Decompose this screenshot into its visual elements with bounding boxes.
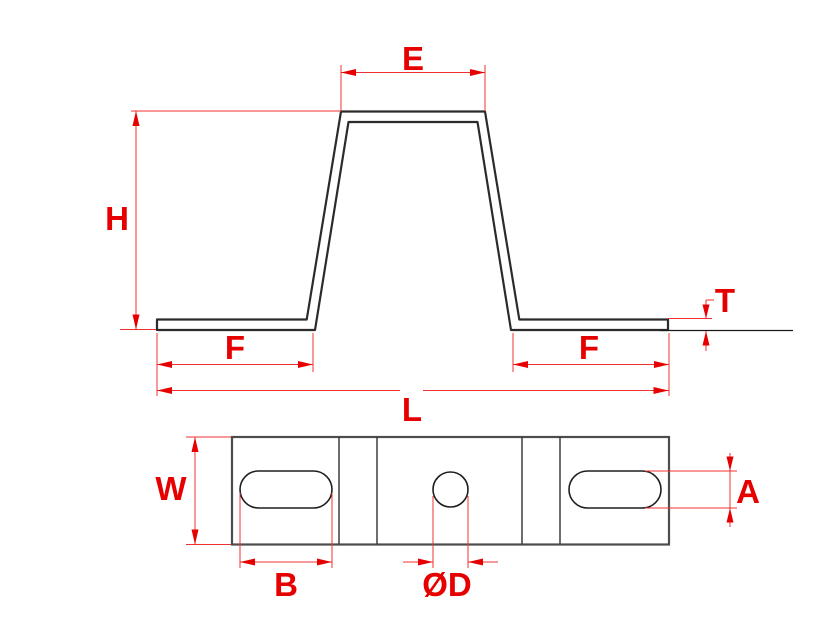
dim-label-e: E	[402, 40, 424, 77]
arrowhead-left	[468, 559, 483, 566]
arrowhead-right	[654, 387, 669, 394]
arrowhead-right	[298, 361, 313, 368]
dim-label-f-right: F	[579, 329, 599, 366]
arrowhead-left	[513, 361, 528, 368]
dimension-e: E	[341, 40, 485, 111]
dim-label-t: T	[715, 282, 735, 319]
arrowhead-down	[727, 457, 734, 472]
center-round-hole	[433, 472, 468, 507]
arrowhead-left	[157, 361, 172, 368]
arrowhead-right	[317, 559, 332, 566]
profile-view: E H T F	[105, 40, 793, 428]
arrowhead-left	[157, 387, 172, 394]
dimension-b: B	[240, 493, 332, 603]
dim-label-f-left: F	[225, 329, 245, 366]
arrowhead-down	[192, 530, 199, 545]
arrowhead-right	[470, 69, 485, 76]
dim-label-l: L	[402, 391, 422, 428]
flat-pattern-view: W B ØD A	[155, 437, 760, 603]
arrowhead-up	[133, 111, 140, 126]
dim-label-d: ØD	[422, 566, 472, 603]
arrowhead-down	[703, 305, 710, 319]
arrowhead-left	[341, 69, 356, 76]
dimension-h: H	[105, 111, 341, 330]
bracket-profile-outline	[157, 112, 668, 331]
flat-pattern-outline	[232, 437, 669, 545]
technical-drawing: E H T F	[0, 0, 832, 621]
arrowhead-right	[654, 361, 669, 368]
dim-label-w: W	[155, 470, 187, 507]
dimension-f-left: F	[157, 329, 313, 372]
dim-label-a: A	[736, 473, 760, 510]
arrowhead-up	[192, 437, 199, 452]
arrowhead-down	[133, 315, 140, 330]
dimension-d: ØD	[403, 496, 498, 603]
arrowhead-left	[240, 559, 255, 566]
arrowhead-right	[418, 559, 433, 566]
right-slot-hole	[569, 471, 661, 508]
drawing-canvas: E H T F	[0, 0, 832, 621]
dimension-f-right: F	[513, 329, 669, 372]
arrowhead-up	[703, 331, 710, 346]
dimension-t: T	[668, 282, 735, 351]
dim-label-b: B	[274, 566, 298, 603]
arrowhead-up	[727, 508, 734, 523]
left-slot-hole	[240, 471, 332, 508]
dimension-a: A	[645, 453, 760, 527]
dimension-w: W	[155, 437, 231, 545]
dim-label-h: H	[105, 200, 129, 237]
